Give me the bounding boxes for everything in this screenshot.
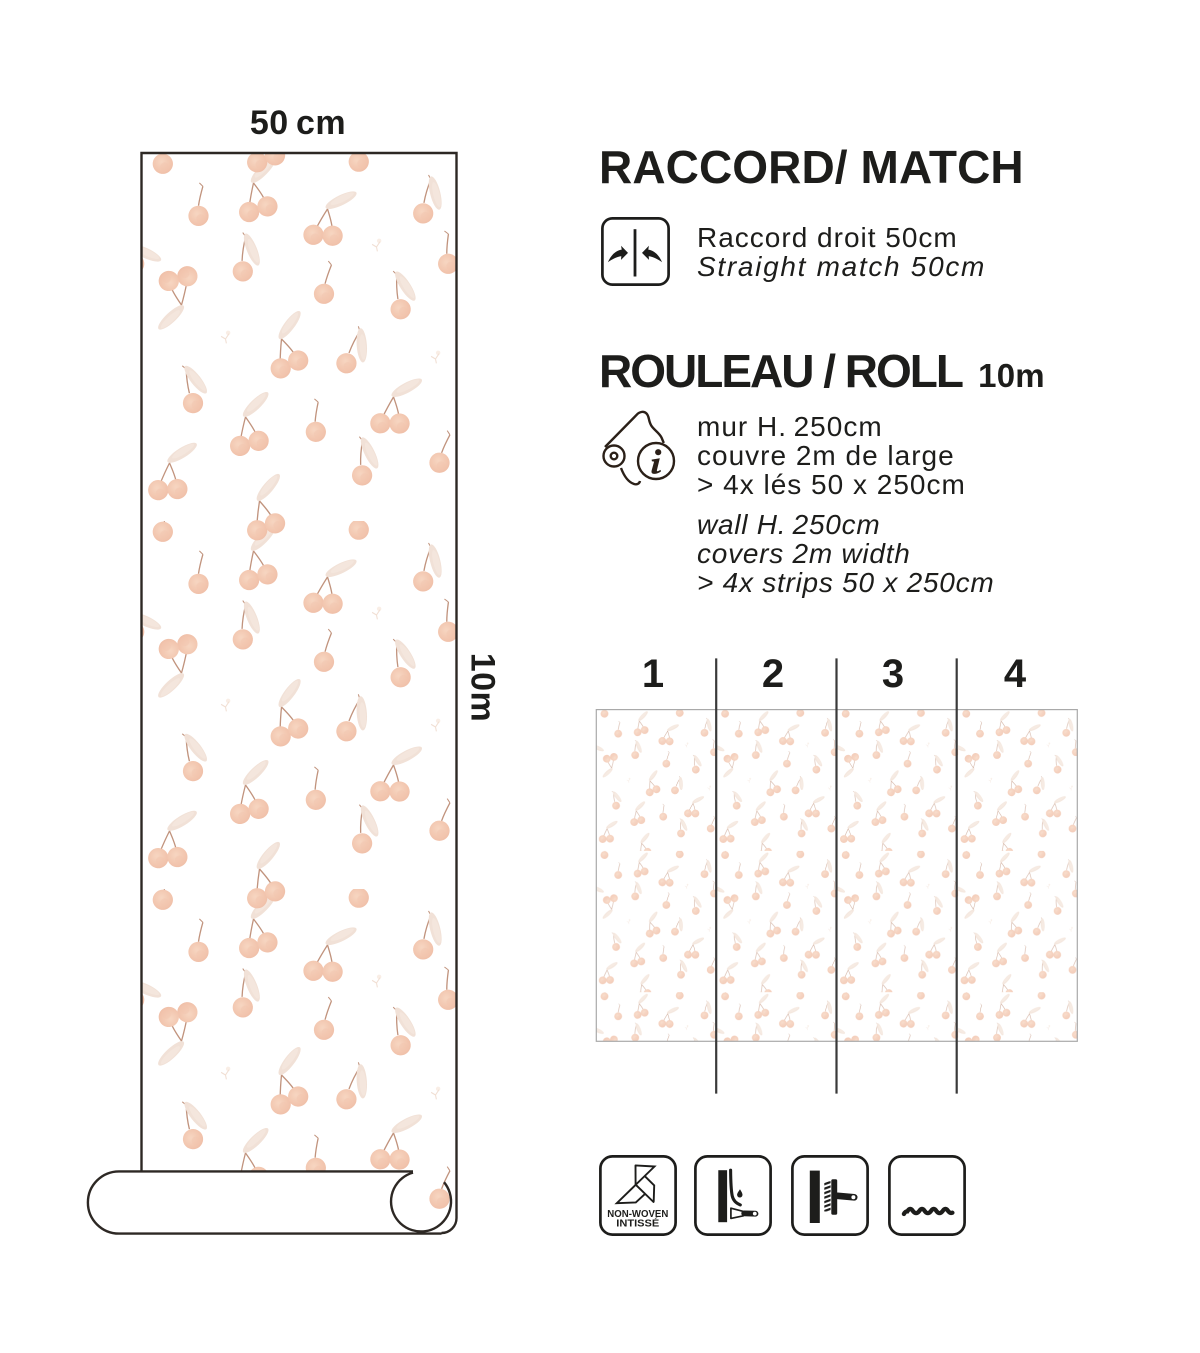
svg-text:INTISSÉ: INTISSÉ [616, 1216, 659, 1229]
